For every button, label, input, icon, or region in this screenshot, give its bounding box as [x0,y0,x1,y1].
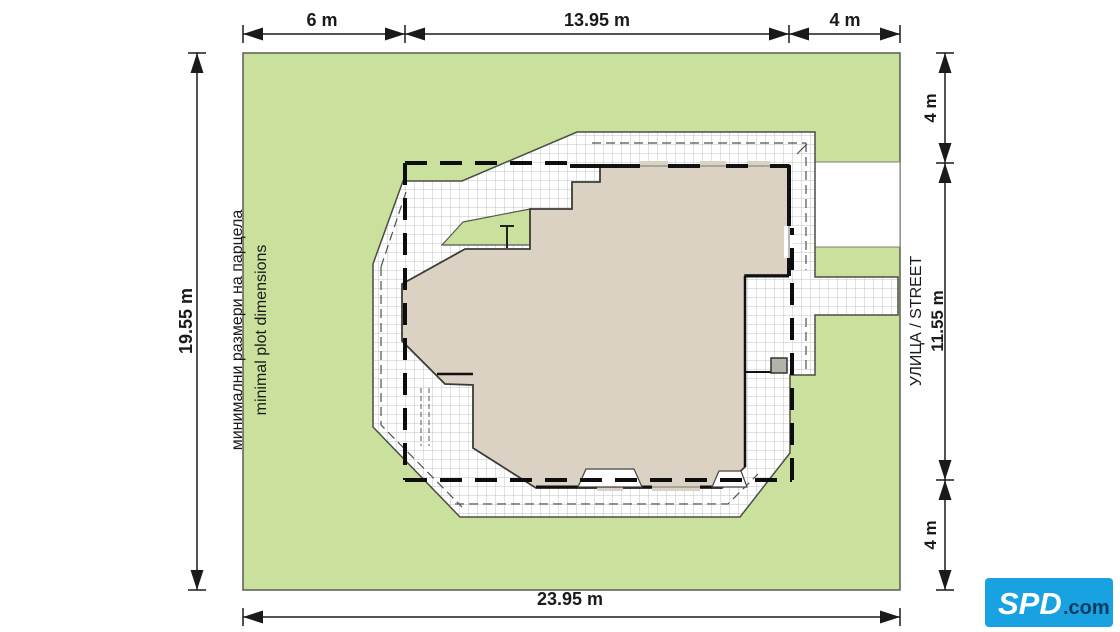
logo-domain-text: .com [1063,597,1110,619]
dim-top-4m: 4 m [829,10,860,30]
entry-marker-square [771,358,787,373]
street-label: УЛИЦА / STREET [908,255,925,386]
logo[interactable]: SPD .com [985,578,1113,627]
dim-top-6m: 6 m [306,10,337,30]
dim-left-19-55m: 19.55 m [176,288,196,354]
dim-right-11-55m: 11.55 m [928,290,947,351]
plot-label-english: minimal plot dimensions [253,245,270,416]
plot-label-bulgarian: минимални размери на парцела [229,210,246,451]
dim-top-13-95m: 13.95 m [564,10,630,30]
dim-right-bottom-4m: 4 m [921,520,940,549]
street-access-area [815,162,900,247]
site-plan-canvas: 6 m 13.95 m 4 m 19.55 m 4 m УЛИЦА / STRE… [0,0,1120,632]
site-plan-drawing: 6 m 13.95 m 4 m 19.55 m 4 m УЛИЦА / STRE… [0,0,1120,632]
logo-brand-text: SPD [998,586,1062,621]
dim-right-top-4m: 4 m [921,93,940,122]
dim-bottom-23-95m: 23.95 m [537,589,603,609]
